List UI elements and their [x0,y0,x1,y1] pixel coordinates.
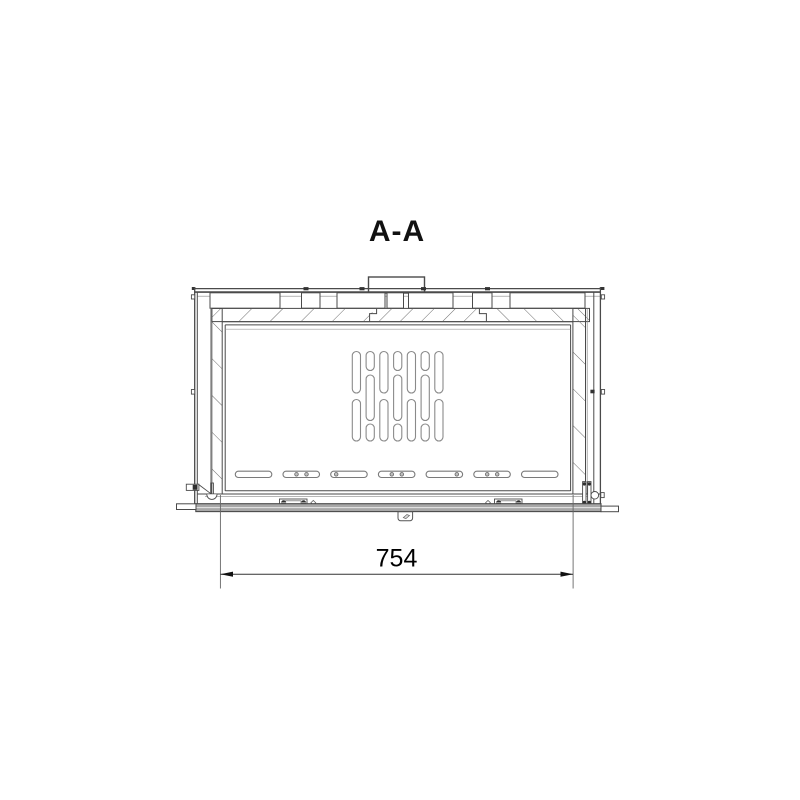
vent-slots-horizontal [235,471,558,477]
vent-slots-vertical [352,352,443,442]
section-title: A-A [369,215,425,248]
firebox-interior [222,322,573,491]
right-wall-hatch [573,309,587,495]
foot-bracket-left [177,504,197,510]
left-wall-hatch [210,309,222,495]
center-latch-tab [398,512,413,521]
arrowhead-right-icon [561,572,574,577]
base-rail [196,504,601,512]
flue-collar [369,277,425,293]
slot-rivets [295,473,499,477]
section-drawing: A-A [0,0,800,800]
arrowhead-left-icon [220,572,233,577]
top-frame-segments [210,293,585,308]
insulation-hatch-band [212,308,590,321]
foot-bracket-right [601,506,619,512]
bottom-frame [177,482,619,521]
dimension-value: 754 [376,545,418,573]
technical-drawing-canvas: A-A [0,0,800,800]
